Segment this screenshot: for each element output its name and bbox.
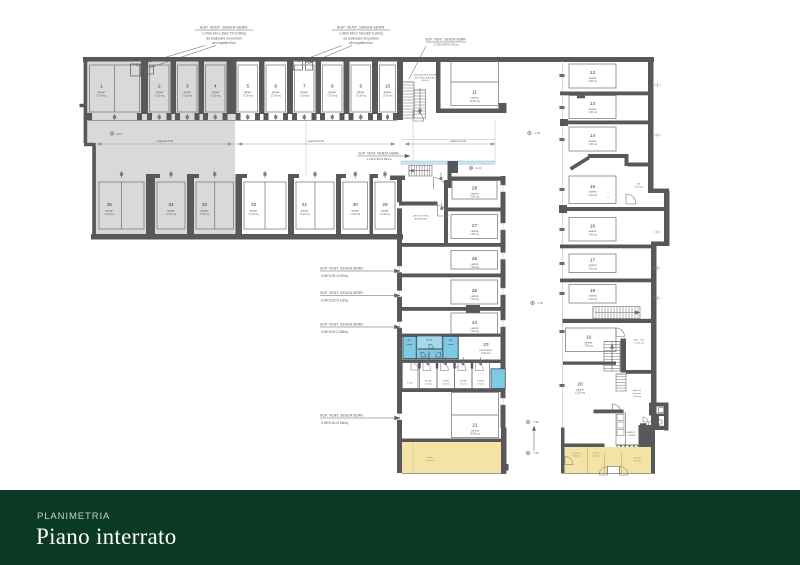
- svg-text:7,00 mq: 7,00 mq: [633, 396, 642, 398]
- svg-text:13: 13: [590, 101, 596, 106]
- svg-text:17,00 mq: 17,00 mq: [243, 94, 254, 97]
- svg-text:da realizzare nei portoni: da realizzare nei portoni: [206, 36, 241, 40]
- svg-text:7,00 mq: 7,00 mq: [588, 194, 597, 197]
- svg-text:31: 31: [302, 202, 308, 207]
- svg-text:larghezza 5.00: larghezza 5.00: [157, 140, 173, 143]
- svg-text:1.10x6.35=6.99mq: 1.10x6.35=6.99mq: [367, 157, 392, 161]
- svg-text:7,00 mq: 7,00 mq: [588, 233, 597, 236]
- svg-text:SUP. VENT. SENZA SERR.: SUP. VENT. SENZA SERR.: [320, 414, 364, 418]
- svg-text:1,50 mq: 1,50 mq: [460, 383, 467, 385]
- svg-text:20: 20: [577, 382, 583, 387]
- svg-text:SUP. VENT. SENZA SERR.: SUP. VENT. SENZA SERR.: [320, 323, 364, 327]
- svg-text:cantina: cantina: [572, 452, 580, 455]
- svg-text:-7.36: -7.36: [533, 451, 539, 455]
- svg-text:5,00 mq: 5,00 mq: [592, 455, 599, 457]
- svg-text:0.96*3.20=3.07mq: 0.96*3.20=3.07mq: [321, 274, 348, 278]
- svg-text:19: 19: [586, 335, 592, 340]
- svg-text:35: 35: [107, 202, 113, 207]
- svg-text:W.C.: W.C.: [449, 340, 454, 342]
- svg-text:rip.: rip.: [637, 183, 641, 186]
- svg-text:13,50 mq: 13,50 mq: [470, 100, 481, 103]
- svg-text:16: 16: [590, 223, 596, 228]
- svg-text:1,50 mq: 1,50 mq: [477, 383, 484, 385]
- svg-text:SUP. VENT. SENZA SERR.: SUP. VENT. SENZA SERR.: [320, 291, 364, 295]
- svg-text:17,00 mq: 17,00 mq: [350, 213, 361, 216]
- svg-text:15: 15: [590, 184, 596, 189]
- svg-text:dei rispettivi box: dei rispettivi box: [349, 41, 373, 45]
- svg-text:14: 14: [590, 133, 596, 138]
- svg-text:23: 23: [483, 342, 489, 347]
- svg-text:0.96*3.00=2.88mq: 0.96*3.00=2.88mq: [321, 330, 348, 334]
- svg-text:17,00 mq: 17,00 mq: [380, 213, 391, 216]
- svg-text:17,00 mq: 17,00 mq: [300, 213, 311, 216]
- svg-text:34: 34: [168, 202, 174, 207]
- svg-text:W.02A: W.02A: [443, 380, 450, 383]
- svg-text:ASCENSORE: ASCENSORE: [415, 217, 428, 220]
- svg-text:12,00 mq: 12,00 mq: [575, 392, 586, 395]
- svg-text:18: 18: [590, 288, 596, 293]
- svg-text:27: 27: [472, 223, 478, 228]
- svg-text:W.04A: W.04A: [478, 380, 485, 383]
- svg-text:17,00 mq: 17,00 mq: [104, 213, 115, 216]
- svg-text:+: +: [607, 195, 609, 199]
- svg-text:ASC. 1,35: ASC. 1,35: [634, 339, 645, 342]
- svg-text:17,00 mq: 17,00 mq: [327, 94, 338, 97]
- svg-text:17,00 mq: 17,00 mq: [299, 94, 310, 97]
- svg-text:-4.24: -4.24: [475, 166, 481, 170]
- svg-text:W.01A: W.01A: [425, 380, 432, 383]
- svg-text:1,50 mq: 1,50 mq: [425, 383, 432, 385]
- svg-text:17,00 mq: 17,00 mq: [199, 213, 210, 216]
- svg-text:locale: locale: [427, 457, 433, 459]
- svg-text:17,00 mq: 17,00 mq: [182, 94, 193, 97]
- svg-text:dei rispettivi box: dei rispettivi box: [212, 41, 236, 45]
- svg-text:GRIGLIA GRIGLIATURA: GRIGLIA GRIGLIATURA: [414, 74, 437, 77]
- svg-text:1.35x3.90=4.20mq: 1.35x3.90=4.20mq: [434, 43, 459, 47]
- svg-text:W.C.: W.C.: [407, 340, 412, 342]
- svg-text:6: 6: [274, 84, 277, 89]
- svg-text:SUP. VENT. SENZA SERR.: SUP. VENT. SENZA SERR.: [337, 25, 386, 30]
- svg-text:LAVATOIO: LAVATOIO: [627, 431, 637, 434]
- svg-text:17,00: 17,00: [407, 383, 413, 385]
- svg-text:W.03A: W.03A: [460, 380, 467, 383]
- svg-text:ANTE B. PORTA: ANTE B. PORTA: [413, 215, 429, 218]
- svg-text:-7.36: -7.36: [537, 301, 543, 305]
- svg-text:17,00 mq: 17,00 mq: [356, 94, 367, 97]
- svg-text:26: 26: [472, 256, 478, 261]
- svg-text:da realizzare nei portoni: da realizzare nei portoni: [343, 36, 378, 40]
- svg-text:7,50 mq: 7,50 mq: [633, 460, 640, 462]
- svg-text:17,00 mq: 17,00 mq: [154, 94, 165, 97]
- svg-text:3,00 mq: 3,00 mq: [635, 187, 644, 189]
- svg-text:7,00 mq: 7,00 mq: [588, 298, 597, 301]
- svg-text:7,00 mq: 7,00 mq: [470, 330, 479, 333]
- svg-text:32: 32: [251, 202, 257, 207]
- svg-text:5: 5: [246, 84, 249, 89]
- svg-text:SUP. VENT. SENZA SERR.: SUP. VENT. SENZA SERR.: [200, 25, 249, 30]
- svg-text:7: 7: [303, 84, 306, 89]
- svg-text:larghezza 5.00: larghezza 5.00: [308, 140, 324, 143]
- svg-text:7,50 mq: 7,50 mq: [470, 233, 479, 236]
- svg-text:9: 9: [359, 84, 362, 89]
- svg-text:x 1,50 mq: x 1,50 mq: [634, 343, 644, 345]
- svg-text:17,00 mq: 17,00 mq: [383, 94, 394, 97]
- svg-text:17,00 mq: 17,00 mq: [210, 94, 221, 97]
- svg-text:17,00 mq: 17,00 mq: [166, 213, 177, 216]
- svg-text:biciclette: biciclette: [633, 392, 642, 395]
- svg-text:7,00 mq: 7,00 mq: [588, 111, 597, 114]
- svg-text:1: 1: [100, 84, 103, 89]
- svg-text:SUP. VENT. SENZA SERR.: SUP. VENT. SENZA SERR.: [425, 38, 466, 42]
- svg-text:7,00 mq: 7,00 mq: [588, 80, 597, 83]
- svg-text:2.70x0.84+1.35x0.73=3.26mq: 2.70x0.84+1.35x0.73=3.26mq: [202, 31, 246, 35]
- svg-text:17,00 mq: 17,00 mq: [271, 94, 282, 97]
- svg-text:17: 17: [590, 257, 596, 262]
- svg-text:deposito: deposito: [633, 389, 642, 392]
- svg-text:SUP. VENT. SENZA SERR.: SUP. VENT. SENZA SERR.: [320, 267, 364, 271]
- svg-text:30: 30: [353, 202, 359, 207]
- svg-text:-0.15: -0.15: [116, 132, 122, 136]
- svg-text:-7.36: -7.36: [533, 420, 539, 424]
- svg-text:17,00 mq: 17,00 mq: [96, 94, 107, 97]
- svg-text:1.35x0.68+2.70x0.89=3.32mq: 1.35x0.68+2.70x0.89=3.32mq: [339, 31, 383, 35]
- svg-text:0.96*3.23=3.10mq: 0.96*3.23=3.10mq: [321, 299, 348, 303]
- svg-text:SUP. VENT. SENZA SERR.: SUP. VENT. SENZA SERR.: [358, 152, 399, 156]
- svg-text:17,00 mq: 17,00 mq: [249, 213, 260, 216]
- svg-text:7,00 mq: 7,00 mq: [588, 267, 597, 270]
- svg-text:28: 28: [472, 186, 478, 191]
- svg-text:COMUNE: COMUNE: [627, 435, 636, 437]
- svg-text:-7.36: -7.36: [534, 131, 540, 135]
- svg-text:7,50 mq: 7,50 mq: [584, 345, 593, 348]
- svg-text:larghezza 5.00: larghezza 5.00: [450, 140, 466, 143]
- svg-text:5,00 mq: 5,00 mq: [482, 352, 491, 355]
- svg-text:cantina: cantina: [633, 457, 641, 460]
- svg-text:24: 24: [472, 320, 478, 325]
- svg-text:0.96*5.40=5.18mq: 0.96*5.40=5.18mq: [321, 421, 348, 425]
- svg-text:1.30x2.40: 1.30x2.40: [421, 80, 431, 82]
- svg-text:10: 10: [385, 84, 391, 89]
- svg-text:1,50 mq: 1,50 mq: [442, 383, 449, 385]
- svg-text:2: 2: [158, 84, 161, 89]
- svg-text:comune: comune: [426, 460, 435, 462]
- svg-text:8: 8: [331, 84, 334, 89]
- svg-text:7,50 mq: 7,50 mq: [470, 298, 479, 301]
- svg-text:7,00 mq: 7,00 mq: [470, 196, 479, 199]
- svg-text:11: 11: [472, 90, 477, 95]
- svg-text:7,00 mq: 7,00 mq: [588, 143, 597, 146]
- svg-text:4: 4: [214, 84, 217, 89]
- svg-text:25: 25: [472, 288, 478, 293]
- svg-text:7,00 mq: 7,00 mq: [470, 266, 479, 269]
- svg-text:20,50 mq: 20,50 mq: [470, 433, 481, 436]
- svg-text:5,00 mq: 5,00 mq: [572, 455, 579, 457]
- svg-text:29: 29: [382, 202, 388, 207]
- svg-text:cantina: cantina: [592, 452, 600, 455]
- svg-text:3: 3: [186, 84, 189, 89]
- svg-text:W.C.B.: W.C.B.: [426, 339, 433, 341]
- svg-text:SUP. VENT. GIARDINO: SUP. VENT. GIARDINO: [414, 76, 436, 79]
- svg-text:12: 12: [590, 70, 596, 75]
- svg-text:33: 33: [202, 202, 208, 207]
- svg-text:21: 21: [472, 423, 478, 428]
